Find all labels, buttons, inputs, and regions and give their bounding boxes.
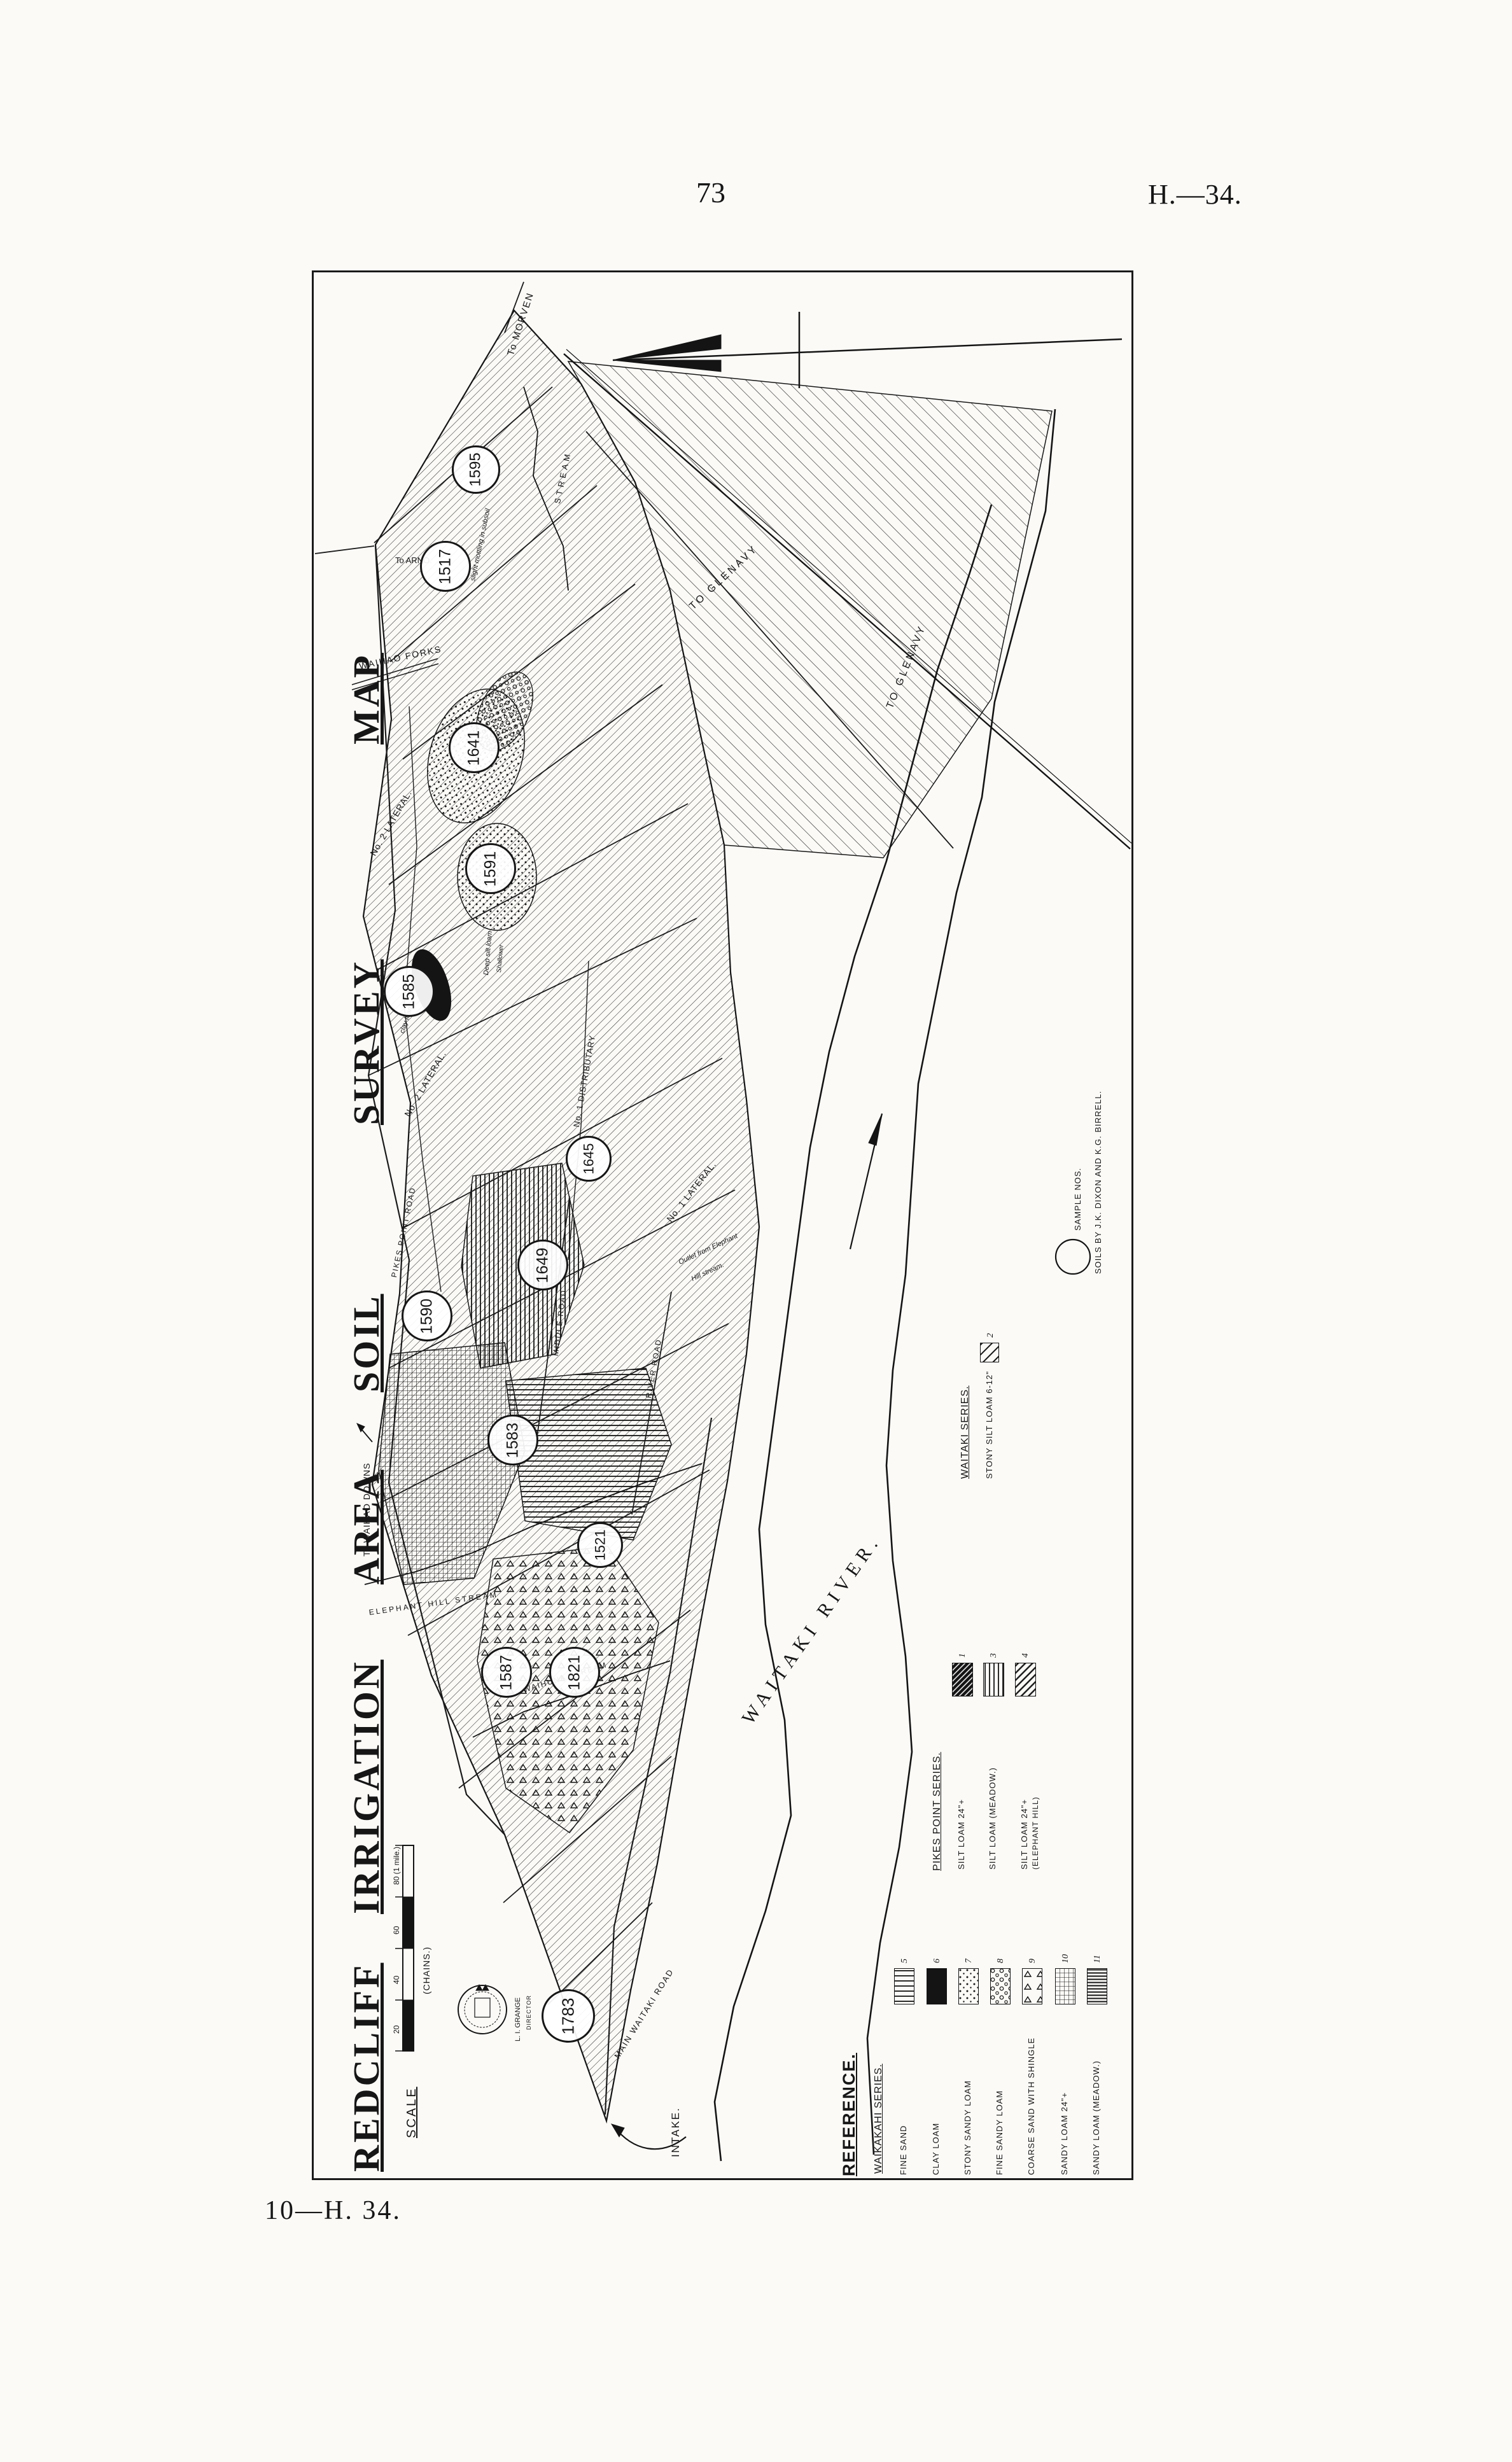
legend-swatch-1 (952, 1663, 973, 1696)
sample-number: 1783 (559, 1997, 578, 2034)
sample-circle-1649: 1649 (517, 1240, 568, 1290)
sample-number: 1595 (467, 452, 485, 486)
legend-num-4: 4 (1021, 1653, 1030, 1658)
sample-number: 1821 (566, 1654, 584, 1690)
sample-number: 1583 (504, 1422, 522, 1458)
sample-circle-1585: 1585 (384, 966, 435, 1017)
legend-label-waikakahi-9: COARSE SAND WITH SHINGLE (1027, 2038, 1035, 2175)
pikes-point-series-title: PIKES POINT SERIES. (932, 1752, 942, 1871)
page-number: 73 (696, 176, 725, 209)
legend-num-9: 9 (1028, 1959, 1037, 1963)
legend-num-11: 11 (1093, 1955, 1102, 1963)
map-frame: MAPSURVEYSOILAREAIRRIGATIONREDCLIFFTo MO… (312, 270, 1133, 2180)
soils-by-note: SOILS BY J.K. DIXON AND K.G. BIRRELL. (1094, 1091, 1102, 1274)
legend-label-waikakahi-10: SANDY LOAM 24"+ (1060, 2092, 1068, 2175)
sample-nos-note: SAMPLE NOS. (1074, 1168, 1082, 1231)
legend-label-waikakahi-5: FINE SAND (899, 2125, 907, 2175)
legend-label-pikes-point-3: SILT LOAM (MEADOW.) (988, 1767, 997, 1870)
legend-label-waikakahi-7: STONY SANDY LOAM (963, 2080, 972, 2175)
sample-circle-1587: 1587 (481, 1647, 532, 1698)
waikakahi-series-title: WAIKAKAHI SERIES. (874, 2064, 884, 2174)
sample-circle-1517: 1517 (420, 541, 471, 592)
sample-circle-1641: 1641 (449, 722, 500, 773)
seal-name: L. I. GRANGE (515, 1997, 522, 2041)
sample-number: 1587 (498, 1654, 516, 1690)
sample-number: 1645 (580, 1144, 597, 1175)
scale-tick-40: 40 (393, 1976, 400, 1984)
legend-num-7: 7 (965, 1959, 974, 1963)
scale-tick-60: 60 (393, 1926, 400, 1934)
sample-circle-1783: 1783 (542, 1989, 595, 2043)
sample-circle-1645: 1645 (566, 1136, 612, 1182)
legend-num-6: 6 (933, 1959, 942, 1963)
legend-label-pikes-point-4: SILT LOAM 24"+ (1020, 1799, 1028, 1870)
legend-num-2: 2 (986, 1333, 995, 1338)
legend-num-1: 1 (958, 1653, 967, 1658)
legend-label-pikes-point-1: SILT LOAM 24"+ (957, 1799, 965, 1870)
document-reference: H.—34. (1148, 178, 1242, 211)
legend-swatch-11 (1087, 1968, 1107, 2004)
sample-circle-1591: 1591 (465, 843, 516, 894)
sample-number: 1590 (418, 1298, 437, 1334)
sample-circle-1590: 1590 (402, 1290, 452, 1341)
to-waihao-downs: To WAIHAO DOWNS (362, 1463, 371, 1557)
legend-num-3: 3 (990, 1653, 998, 1658)
legend-swatch-4 (1015, 1663, 1036, 1696)
sample-number-symbol (1056, 1240, 1090, 1274)
sample-number: 1649 (534, 1247, 552, 1283)
seal-role: DIRECTOR (526, 1995, 532, 2030)
sample-circle-1521: 1521 (577, 1522, 623, 1568)
waihao-downs-arrow-icon (357, 1423, 372, 1442)
legend-swatch-9 (1022, 1968, 1042, 2004)
sample-number: 1641 (465, 730, 484, 766)
sample-circle-1583: 1583 (487, 1415, 538, 1465)
scale-title: SCALE (405, 2087, 418, 2138)
footer-signature: 10—H. 34. (265, 2195, 402, 2226)
waitaki-series-title: WAITAKI SERIES. (960, 1385, 970, 1479)
legend-num-5: 5 (900, 1959, 909, 1963)
legend-swatch-5 (894, 1968, 914, 2004)
scale-units: (CHAINS.) (422, 1947, 431, 1994)
scale-tick-80: 80 (1 mile.) (393, 1847, 400, 1885)
reference-title: REFERENCE. (841, 2053, 858, 2176)
legend-label-waikakahi-11: SANDY LOAM (MEADOW.) (1092, 2060, 1100, 2175)
map-title-soil: SOIL (348, 1294, 385, 1392)
legend-label-waitaki-2: STONY SILT LOAM 6-12" (985, 1371, 993, 1479)
legend-swatch-8 (990, 1968, 1011, 2004)
scale-tick-20: 20 (393, 2025, 400, 2034)
sample-number: 1591 (482, 851, 500, 886)
sample-circle-1821: 1821 (549, 1647, 600, 1698)
legend-swatch-6 (927, 1968, 947, 2004)
legend-swatch-10 (1055, 1968, 1075, 2004)
river-flow-arrow-icon (850, 1114, 882, 1249)
survey-seal-icon (458, 1985, 507, 2034)
legend-swatch-3 (983, 1663, 1004, 1696)
sample-number: 1521 (592, 1530, 608, 1561)
legend-num-10: 10 (1061, 1954, 1070, 1963)
legend-label-waikakahi-8: FINE SANDY LOAM (995, 2090, 1004, 2175)
legend-label-waikakahi-6: CLAY LOAM (932, 2123, 940, 2175)
sample-circle-1595: 1595 (452, 445, 500, 494)
map-title-irrigation: IRRIGATION (348, 1660, 385, 1914)
legend-swatch-2 (980, 1343, 999, 1362)
sample-number: 1585 (400, 974, 419, 1009)
legend-label-pikes-point-4-line2: (ELEPHANT HILL) (1032, 1796, 1039, 1870)
legend-num-8: 8 (997, 1959, 1005, 1963)
scanned-document-page: 73 H.—34. (0, 0, 1512, 2462)
map-title-survey: SURVEY (348, 960, 385, 1125)
sample-number: 1517 (437, 549, 455, 584)
intake: INTAKE. (670, 2107, 681, 2157)
map-title-redcliff: REDCLIFF (348, 1963, 385, 2172)
legend-swatch-7 (958, 1968, 979, 2004)
